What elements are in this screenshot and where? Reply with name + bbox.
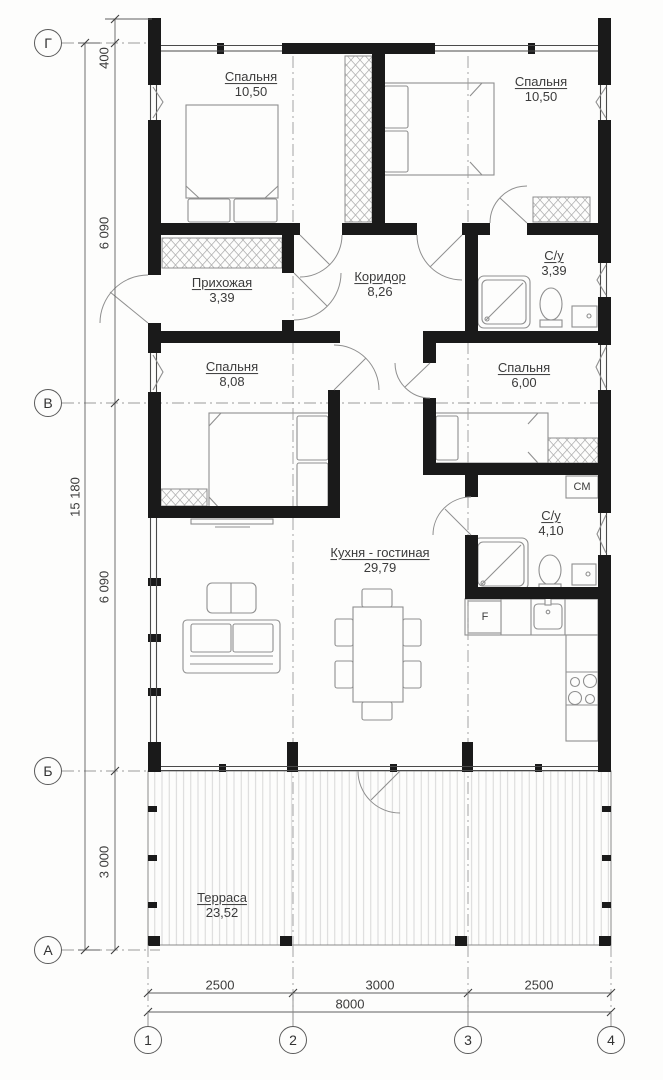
room-label-bathroom-1: С/у3,39 bbox=[541, 249, 566, 279]
room-label-bedroom-1: Спальня10,50 bbox=[225, 70, 277, 100]
room-label-bathroom-2: С/у4,10 bbox=[538, 509, 563, 539]
tv bbox=[191, 519, 273, 527]
axis-col-2: 2 bbox=[279, 1026, 307, 1054]
room-label-terrace: Терраса23,52 bbox=[197, 891, 247, 921]
dim-3000: 3 000 bbox=[97, 846, 112, 879]
bed-bedroom-4 bbox=[433, 413, 548, 463]
room-label-hallway: Прихожая3,39 bbox=[192, 276, 252, 306]
door-bedroom-3 bbox=[334, 345, 379, 390]
room-label-bedroom-2: Спальня10,50 bbox=[515, 75, 567, 105]
axis-col-4: 4 bbox=[597, 1026, 625, 1054]
coffee-table bbox=[207, 583, 256, 613]
door-bedroom-4 bbox=[395, 363, 430, 398]
door-ensuite-bath-1 bbox=[490, 186, 527, 223]
entry-door bbox=[100, 275, 148, 323]
axis-row-v: В bbox=[34, 389, 62, 417]
axis-col-1: 1 bbox=[134, 1026, 162, 1054]
dim-6090-b: 6 090 bbox=[97, 571, 112, 604]
door-hall-corridor bbox=[294, 273, 341, 320]
axis-row-a: А bbox=[34, 936, 62, 964]
door-bath-2 bbox=[433, 497, 471, 535]
sink-1 bbox=[572, 306, 597, 327]
dim-2500-a: 2500 bbox=[206, 978, 235, 993]
floor-plan: Спальня10,50 Спальня10,50 Прихожая3,39 К… bbox=[0, 0, 663, 1080]
axis-col-3: 3 bbox=[454, 1026, 482, 1054]
dim-400: 400 bbox=[97, 47, 112, 69]
dining-table bbox=[335, 589, 421, 720]
room-label-bedroom-3: Спальня8,08 bbox=[206, 360, 258, 390]
bed-bedroom-1 bbox=[186, 105, 278, 222]
bathroom-2-fixtures bbox=[474, 538, 596, 590]
dim-2500-b: 2500 bbox=[525, 978, 554, 993]
axis-row-g: Г bbox=[34, 29, 62, 57]
dim-8000: 8000 bbox=[336, 997, 365, 1012]
bathroom-1-fixtures bbox=[478, 276, 597, 328]
door-bedroom-1 bbox=[300, 235, 342, 277]
fridge-label: F bbox=[482, 611, 489, 623]
dim-15180: 15 180 bbox=[68, 477, 83, 517]
dim-6090-a: 6 090 bbox=[97, 217, 112, 250]
door-bedroom-2 bbox=[417, 235, 462, 280]
floor-plan-drawing bbox=[0, 0, 663, 1080]
room-label-corridor: Коридор8,26 bbox=[354, 270, 405, 300]
toilet-1 bbox=[540, 288, 562, 320]
sofa bbox=[183, 620, 280, 673]
axis-row-b: Б bbox=[34, 757, 62, 785]
washing-machine-label: СМ bbox=[574, 481, 591, 493]
bed-bedroom-2 bbox=[382, 83, 494, 175]
toilet-2 bbox=[539, 555, 561, 585]
dim-ticks-left bbox=[81, 15, 119, 954]
room-label-bedroom-4: Спальня6,00 bbox=[498, 361, 550, 391]
dim-3000-b: 3000 bbox=[366, 978, 395, 993]
room-label-kitchen-living: Кухня - гостиная29,79 bbox=[330, 546, 429, 576]
bed-bedroom-3 bbox=[209, 413, 330, 510]
sink-2 bbox=[572, 564, 596, 585]
furniture bbox=[183, 83, 598, 741]
